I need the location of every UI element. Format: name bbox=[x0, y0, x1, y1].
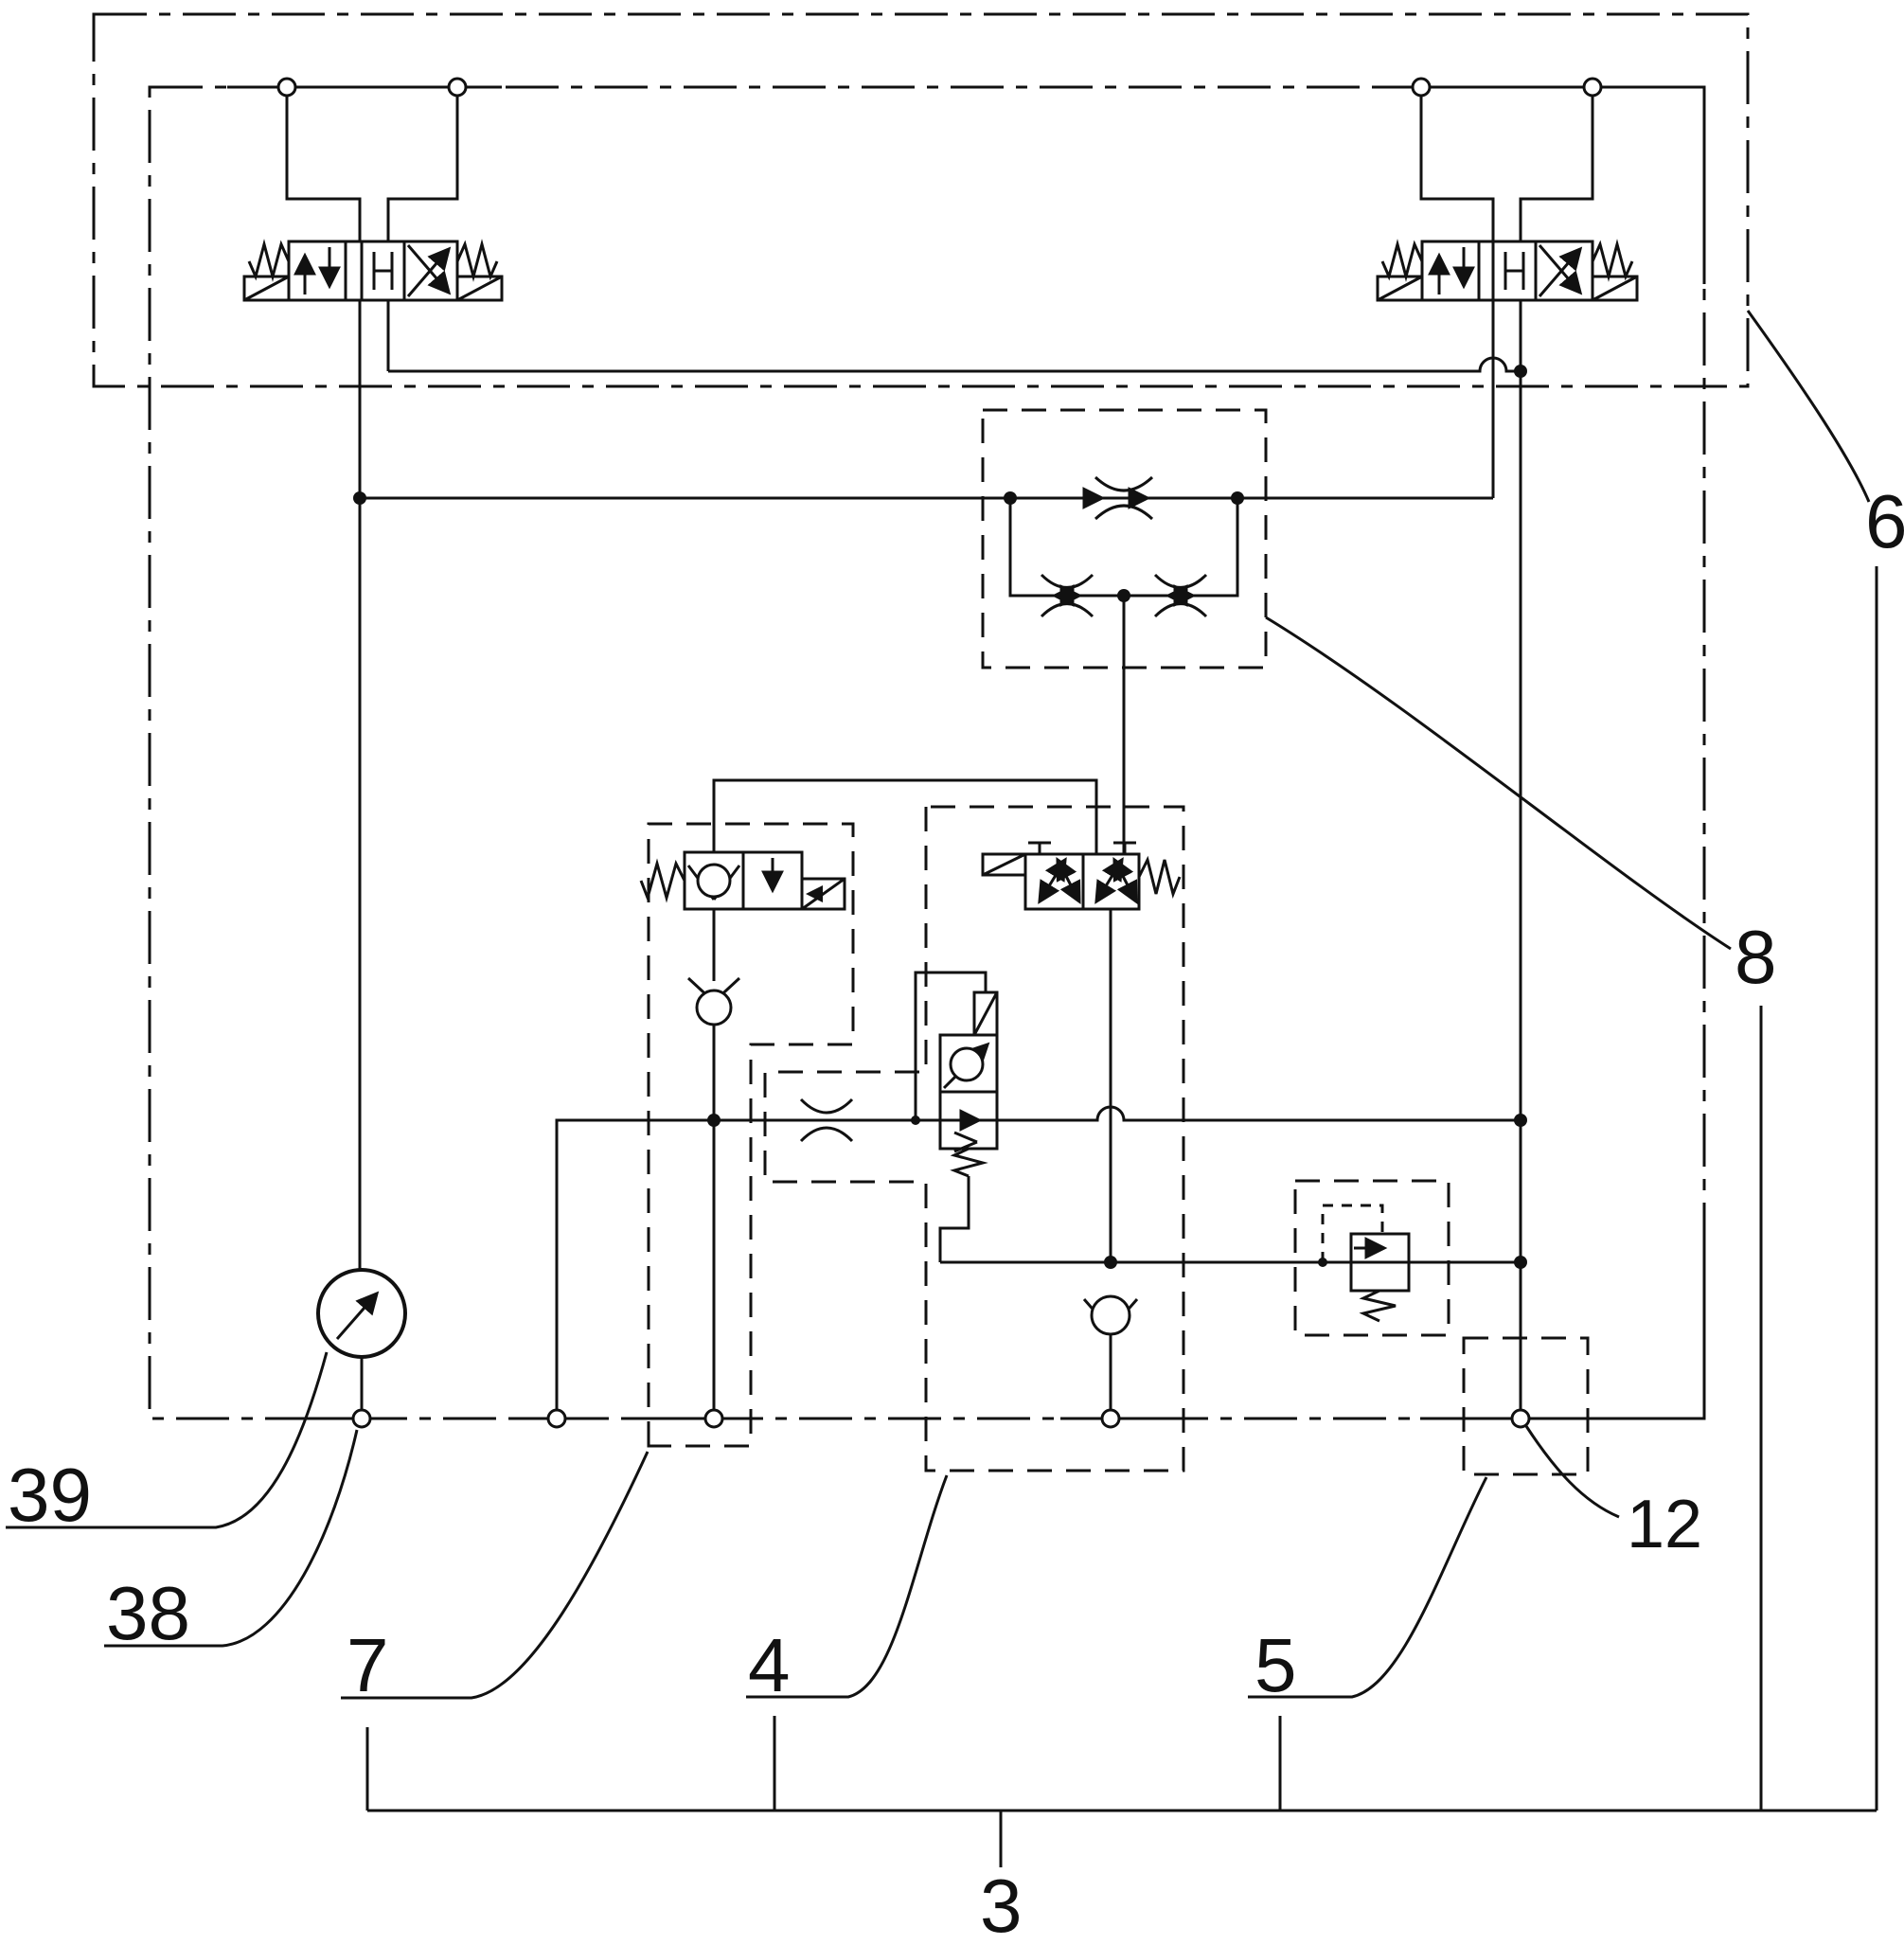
leader-12 bbox=[1526, 1426, 1619, 1517]
check-valve-right bbox=[1084, 1296, 1137, 1410]
shutoff-seat-valve-block-7 bbox=[641, 780, 1096, 1446]
label-3: 3 bbox=[980, 1864, 1023, 1945]
pressure-gauge-39 bbox=[318, 498, 405, 1410]
three-two-pilot-valve bbox=[983, 833, 1180, 1262]
reference-labels: 39 38 7 4 5 3 12 8 6 bbox=[8, 479, 1904, 1945]
throttle-flow-block-8 bbox=[983, 410, 1266, 854]
gauge-port-38 bbox=[353, 1410, 370, 1427]
label-7: 7 bbox=[347, 1623, 389, 1707]
port-p1 bbox=[548, 1410, 565, 1427]
leader-6 bbox=[1748, 311, 1869, 502]
directional-valve-4-3-right bbox=[1378, 79, 1637, 498]
port-p4-12 bbox=[1512, 1410, 1529, 1427]
pressure-compensator-valve bbox=[911, 972, 997, 1262]
pressure-relief-valve bbox=[1295, 1181, 1449, 1335]
outlet-port-block-12 bbox=[1464, 1338, 1588, 1474]
hydraulic-diagram: 39 38 7 4 5 3 12 8 6 bbox=[0, 0, 1904, 1945]
label-4: 4 bbox=[748, 1623, 791, 1707]
main-line-b bbox=[353, 312, 1493, 505]
label-6: 6 bbox=[1865, 479, 1904, 563]
relief-return-line bbox=[940, 1256, 1527, 1269]
label-39: 39 bbox=[8, 1453, 92, 1537]
leader-8 bbox=[1266, 617, 1731, 949]
label-12: 12 bbox=[1627, 1487, 1702, 1562]
port-p3 bbox=[1102, 1410, 1119, 1427]
directional-valve-4-3-left bbox=[244, 79, 502, 498]
compensated-supply-line bbox=[557, 1099, 1527, 1410]
label-5: 5 bbox=[1255, 1623, 1297, 1707]
metering-block-4 bbox=[765, 807, 1183, 1471]
pilot-line-a bbox=[388, 358, 1527, 1419]
label-38: 38 bbox=[106, 1571, 190, 1655]
manifold-enclosure-3 bbox=[150, 87, 1704, 1419]
port-p2 bbox=[705, 1410, 722, 1427]
label-8: 8 bbox=[1735, 915, 1777, 999]
schematic-page: 39 38 7 4 5 3 12 8 6 bbox=[0, 0, 1904, 1945]
